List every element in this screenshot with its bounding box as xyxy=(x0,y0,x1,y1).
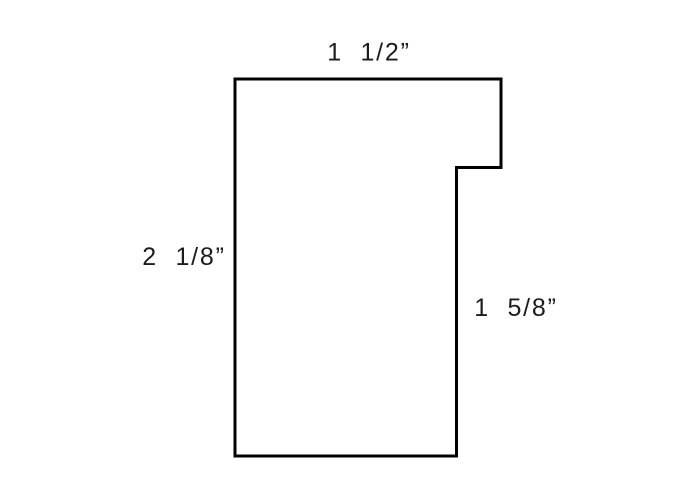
svg-text:1 5/8”: 1 5/8” xyxy=(474,294,557,322)
svg-text:2 1/8”: 2 1/8” xyxy=(142,243,225,271)
svg-text:1 1/2”: 1 1/2” xyxy=(327,39,410,67)
